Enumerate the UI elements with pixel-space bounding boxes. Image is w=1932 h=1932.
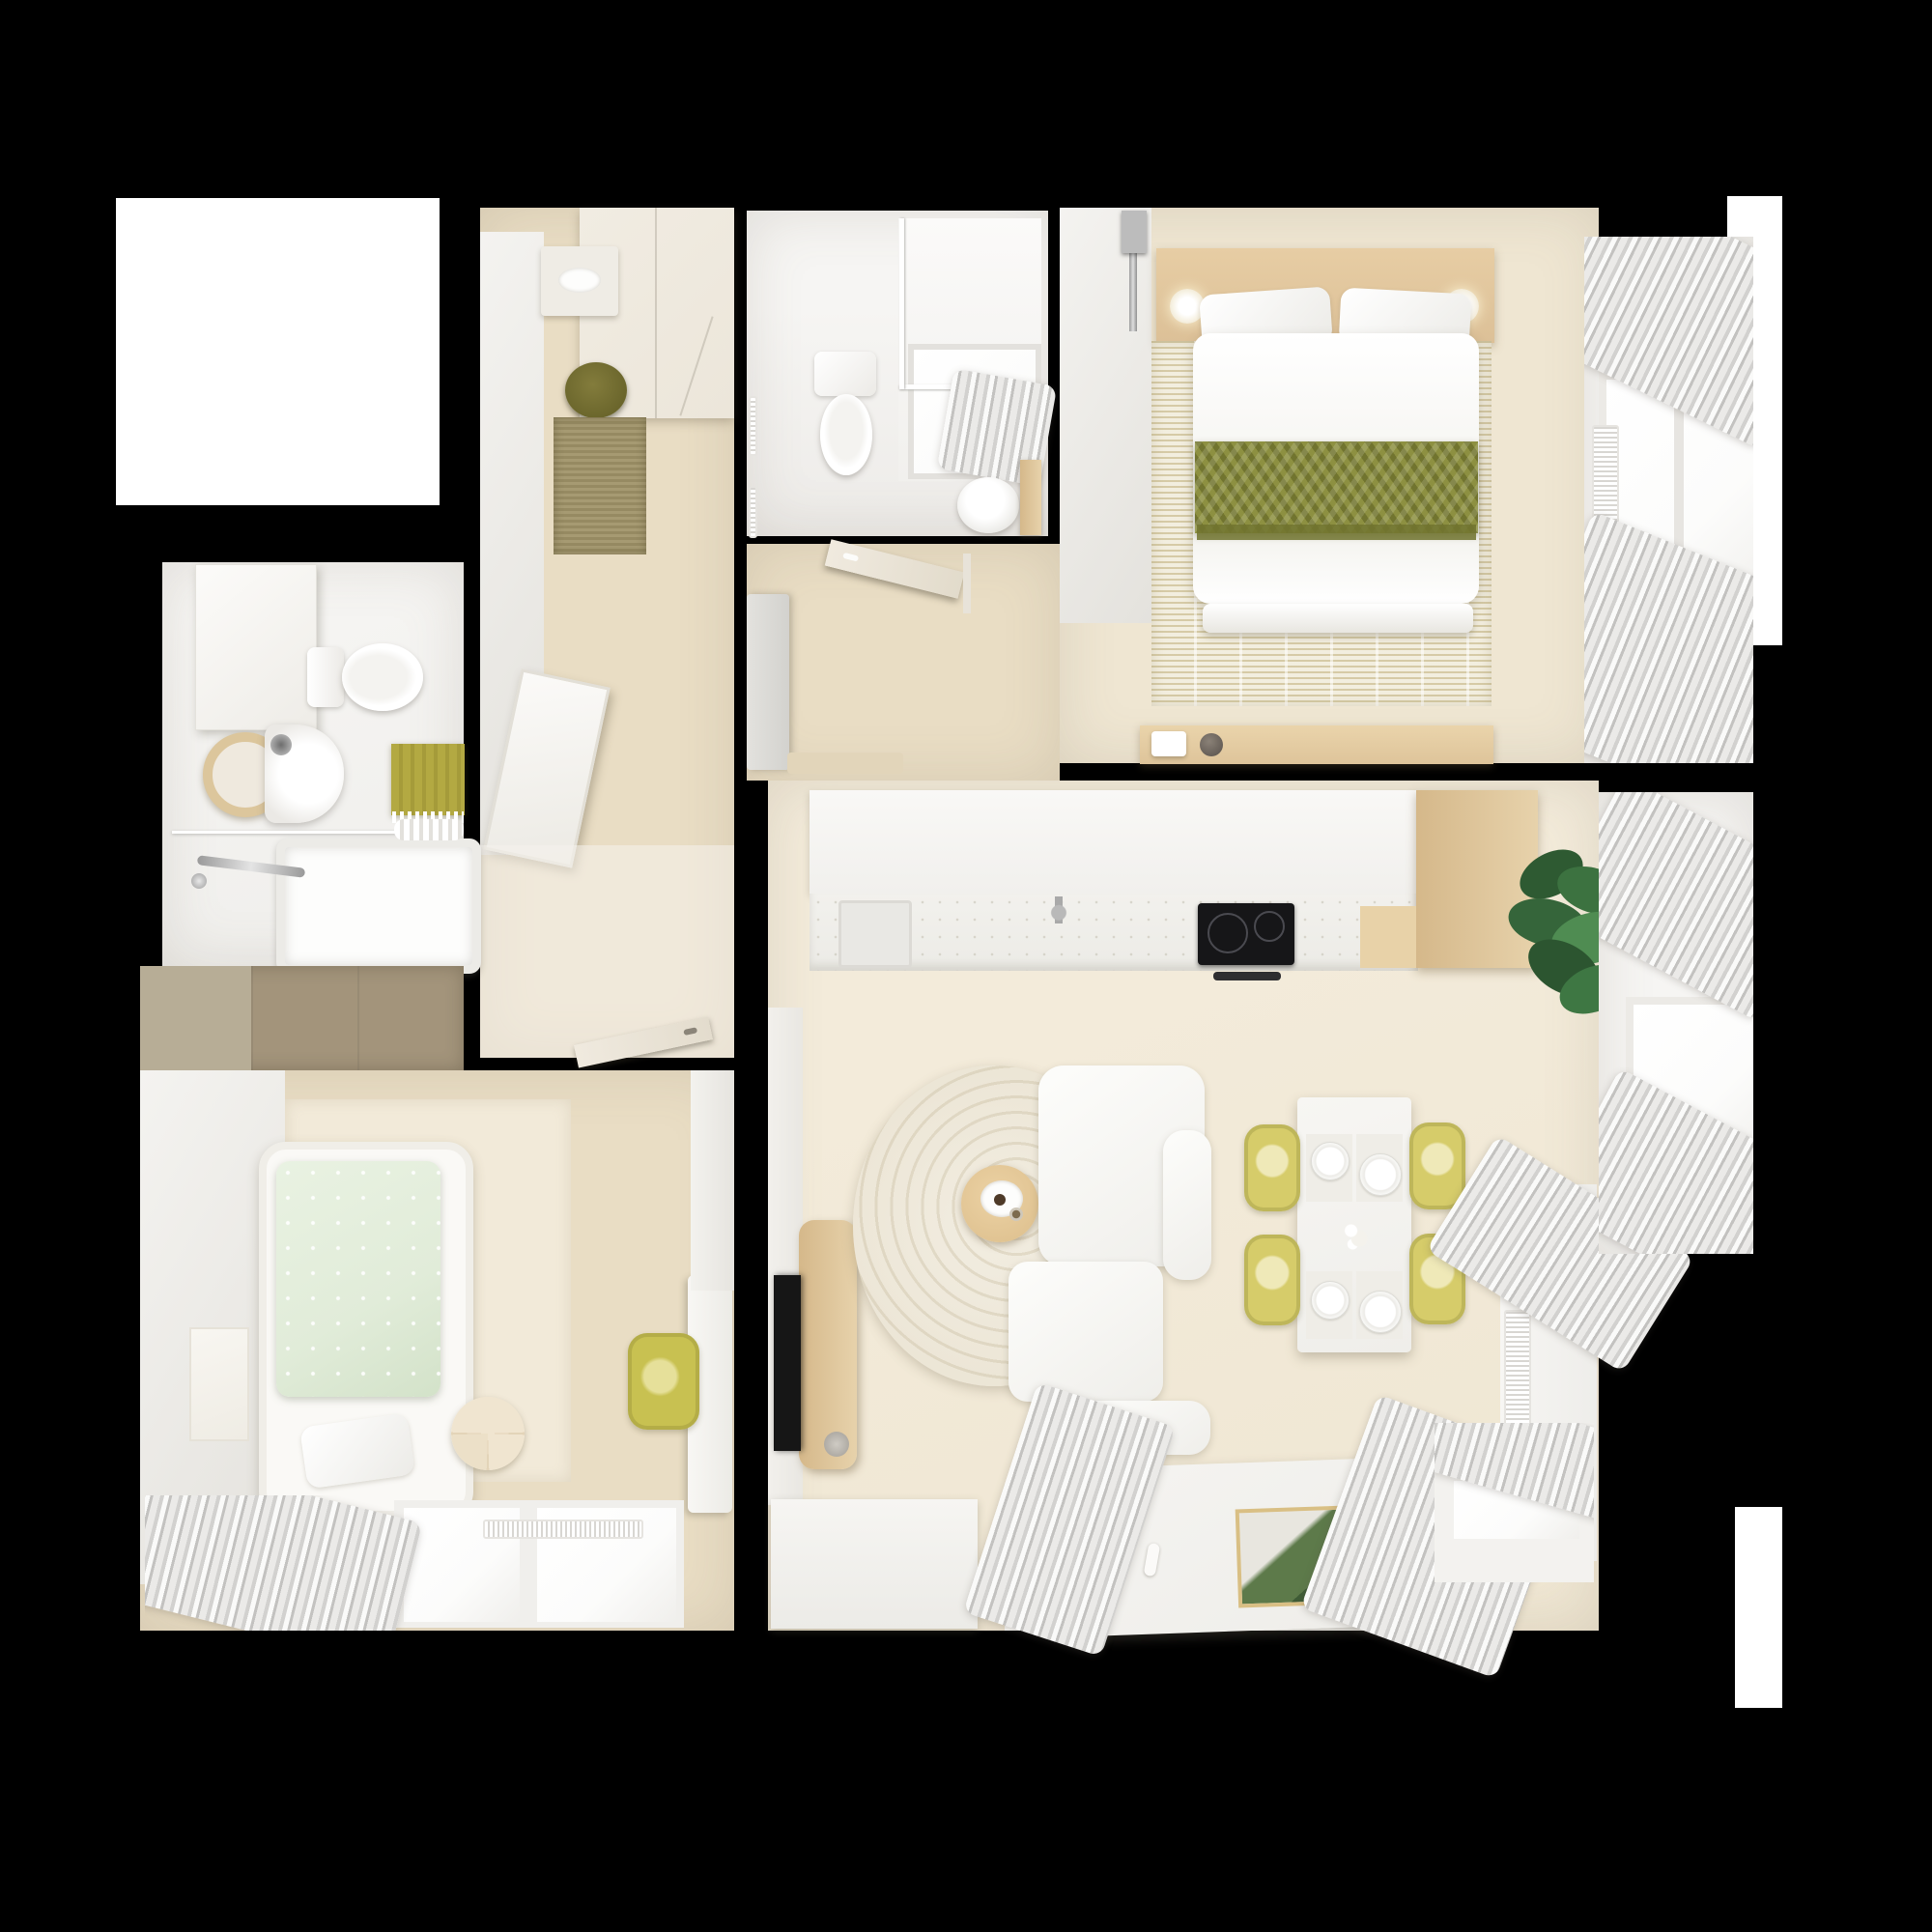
single-bed [259,1142,473,1519]
jute-rug [554,417,646,554]
white-towels [394,819,464,840]
hall-shelf [541,246,618,316]
curtain-bunch-top [1599,792,1753,1021]
kids-room [140,1070,734,1631]
bedroom-door [825,539,965,599]
remote [1144,1543,1161,1577]
wardrobe-seam [655,208,657,418]
wardrobe-seam [251,966,253,1070]
dining-chair [1244,1235,1300,1325]
kids-radiator [483,1520,643,1539]
bathroom-small [747,211,1048,536]
shaft-right-bottom [1735,1507,1782,1708]
coffee-cup [994,1194,1006,1206]
kitchen-sink [838,900,912,968]
olive-throw [1195,441,1478,533]
credenza [771,1499,978,1629]
plate [1311,1281,1350,1320]
towel-rail [749,486,757,538]
wardrobe-seam [357,966,359,1070]
desk-chair [628,1333,699,1430]
living-room [768,781,1599,1631]
sofa-back-cushion [1163,1130,1211,1280]
corridor [747,544,1060,781]
vessel-sink [265,724,344,823]
green-towel [391,744,465,815]
tv-panel [799,1220,857,1469]
induction-hob [1198,903,1294,965]
tall-cabinet [747,594,789,770]
bed-pillow [299,1413,415,1490]
mint-duvet [276,1161,440,1397]
shower-rod-vertical [899,218,904,389]
bath-shelf [1020,460,1041,535]
kitchen-counter [810,894,1418,971]
round-side-table [451,1397,525,1470]
table-decor [1338,1215,1371,1254]
bedside-console [1140,725,1493,764]
light-switch [1151,731,1186,756]
tray [558,268,601,293]
small-coffee-table [961,1165,1038,1242]
sofa-seat [1009,1262,1163,1402]
bedroom-closet-wall [1060,208,1151,623]
storage-basket [565,362,627,418]
door-frame [963,554,971,613]
bathroom-main [162,562,464,966]
kitchen-upper-cabinets [810,790,1418,894]
wardrobe-seam [679,316,713,415]
dining-chair [1409,1122,1465,1209]
speaker [824,1432,849,1457]
bar-extension [1360,906,1416,968]
door-handle [842,553,859,562]
hob-ring [1254,911,1285,942]
pedestal-sink [957,477,1019,533]
curtain-bunch [145,1495,422,1631]
kids-wardrobe [140,966,464,1070]
dining-chair [1244,1124,1300,1211]
sink-faucet [270,734,292,755]
toilet-bowl [820,394,872,475]
toilet-tank [814,352,876,396]
plate [1311,1142,1350,1180]
wall-cabinet [195,564,317,730]
bed-footboard [1203,604,1473,633]
bedroom-master [1060,208,1599,763]
dining-table [1297,1097,1411,1352]
coffee-cup [1009,1207,1023,1221]
unrendered-room-top-left [116,198,440,505]
floor-plan-canvas [0,0,1932,1932]
kids-window-zone [145,1495,691,1631]
tub-handle [191,873,207,889]
plate [1359,1153,1402,1196]
living-window-bay [1599,792,1753,1254]
corridor-bench [787,753,903,774]
tv [774,1275,801,1451]
olive-throw-fold [1197,525,1476,540]
towel-rail [749,396,757,456]
toilet-bowl [342,643,423,711]
hob-ring [1207,913,1248,953]
kitchen-faucet-icon [1041,896,1076,923]
decor-bowl [1200,733,1223,756]
divider-wardrobe [691,1070,734,1291]
wall-art [189,1327,249,1441]
kids-wardrobe-left-section [140,966,251,1070]
oven-handle [1213,972,1281,980]
bedroom-window-bay [1584,237,1753,763]
entry-hall [480,208,734,1058]
corner-window [1435,1423,1594,1582]
plate [1359,1291,1402,1333]
toilet-tank [307,647,344,707]
bathtub [276,838,481,974]
sliding-door-bracket [1122,211,1147,253]
door-handle [683,1027,697,1036]
